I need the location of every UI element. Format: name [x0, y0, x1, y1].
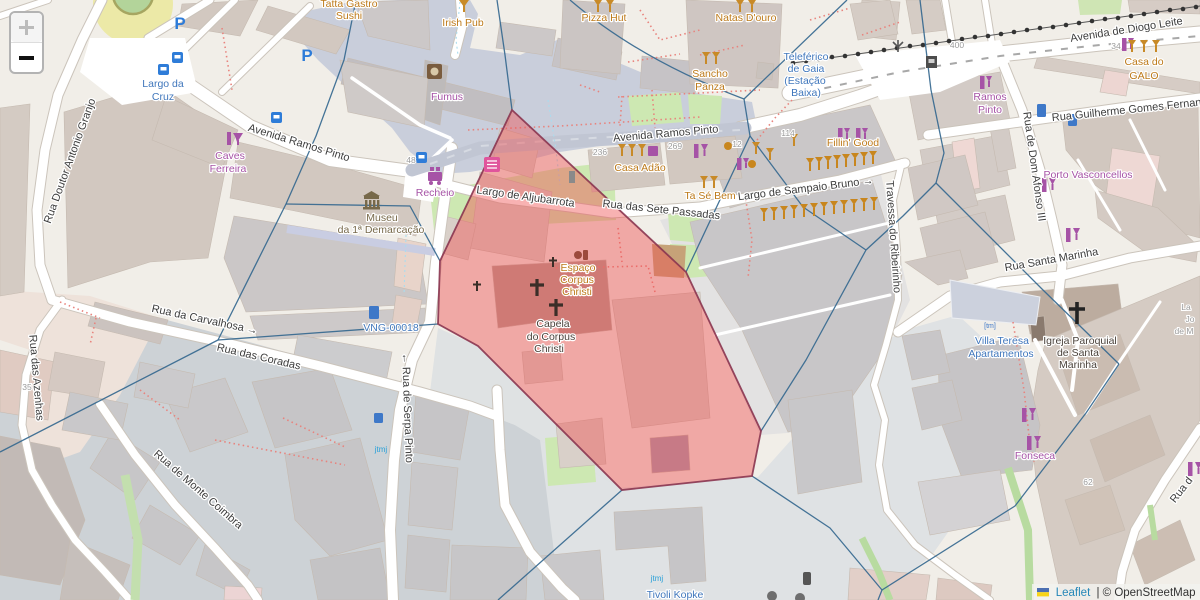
svg-text:Apartamentos: Apartamentos [968, 348, 1033, 360]
svg-text:Corpus: Corpus [560, 274, 594, 286]
svg-text:114: 114 [781, 128, 795, 138]
svg-text:| © OpenStreetMap: | © OpenStreetMap [1096, 587, 1195, 599]
svg-text:Cruz: Cruz [152, 91, 174, 103]
svg-text:Marinha: Marinha [1059, 359, 1097, 371]
svg-text:Casa Adão: Casa Adão [614, 162, 666, 174]
svg-text:Ferreira: Ferreira [210, 163, 247, 175]
svg-text:de Santa: de Santa [1057, 347, 1099, 359]
svg-text:Igreja Paroquial: Igreja Paroquial [1043, 335, 1117, 347]
svg-text:VNG-00018: VNG-00018 [363, 322, 419, 334]
svg-text:400: 400 [950, 40, 964, 50]
svg-text:Natas D'ouro: Natas D'ouro [716, 12, 777, 24]
svg-text:Espaço: Espaço [560, 262, 595, 274]
svg-text:12: 12 [732, 139, 742, 149]
svg-text:La: La [1181, 302, 1191, 312]
svg-text:[tm]: [tm] [984, 323, 996, 330]
svg-text:Tivoli Kopke: Tivoli Kopke [647, 589, 704, 600]
svg-text:Teleférico: Teleférico [784, 51, 829, 63]
svg-text:Ramos: Ramos [973, 91, 1006, 103]
svg-text:Largo da: Largo da [142, 78, 184, 90]
svg-text:Christi: Christi [562, 286, 592, 298]
svg-text:35: 35 [22, 382, 32, 392]
svg-text:Jo: Jo [1186, 314, 1195, 324]
svg-text:Sancho: Sancho [692, 68, 728, 80]
svg-text:de M: de M [1175, 326, 1194, 336]
svg-text:Sushi: Sushi [336, 10, 362, 22]
svg-text:Caves: Caves [215, 150, 245, 162]
svg-text:Recheio: Recheio [416, 187, 455, 199]
svg-text:236: 236 [593, 147, 607, 157]
svg-text:Tatta Gastro: Tatta Gastro [320, 0, 377, 10]
svg-text:269: 269 [668, 141, 682, 151]
svg-text:62: 62 [1083, 477, 1093, 487]
svg-text:Fumus: Fumus [431, 91, 463, 103]
svg-text:P: P [174, 14, 185, 33]
svg-text:da 1ª Demarcação: da 1ª Demarcação [338, 224, 425, 236]
svg-text:(Estação: (Estação [784, 75, 826, 87]
svg-text:de Gaia: de Gaia [788, 63, 825, 75]
svg-text:34: 34 [1111, 41, 1121, 51]
svg-text:Capela: Capela [536, 318, 569, 330]
svg-text:Porto Vasconcellos: Porto Vasconcellos [1043, 169, 1132, 181]
svg-text:GALO: GALO [1129, 70, 1158, 82]
svg-text:Fillin' Good: Fillin' Good [827, 137, 879, 149]
svg-text:Pinto: Pinto [978, 104, 1002, 116]
svg-text:Pizza Hut: Pizza Hut [582, 12, 627, 24]
svg-text:Casa do: Casa do [1124, 56, 1163, 68]
svg-text:jtmj: jtmj [374, 445, 388, 454]
svg-text:Leaflet: Leaflet [1056, 587, 1091, 599]
svg-text:Museu: Museu [366, 212, 398, 224]
svg-text:P: P [301, 46, 312, 65]
svg-text:Baixa): Baixa) [791, 87, 821, 99]
svg-text:Irish Pub: Irish Pub [442, 17, 484, 29]
svg-text:Panza: Panza [695, 81, 725, 93]
svg-text:48: 48 [406, 155, 416, 165]
svg-text:Ta Sé Bem: Ta Sé Bem [684, 190, 736, 202]
svg-text:Christi: Christi [534, 343, 564, 355]
svg-text:Fonseca: Fonseca [1015, 450, 1055, 462]
svg-text:Villa Teresa: Villa Teresa [975, 335, 1029, 347]
svg-text:jtmj: jtmj [650, 574, 664, 583]
svg-text:do Corpus: do Corpus [527, 331, 575, 343]
